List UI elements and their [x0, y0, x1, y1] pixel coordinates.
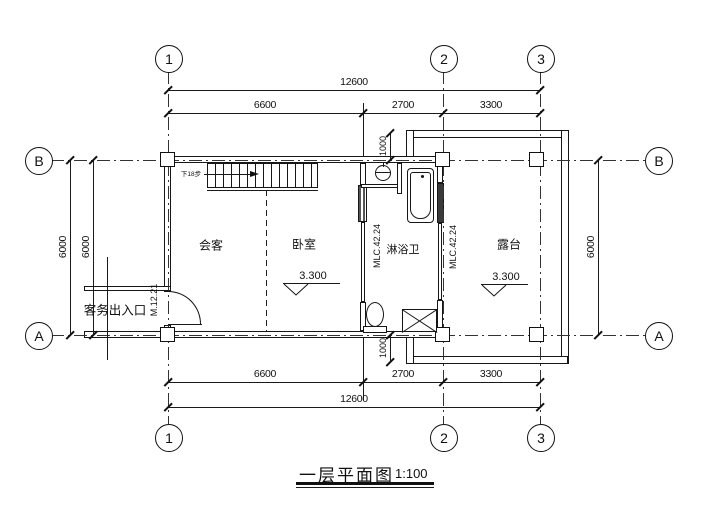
dim-line-right: [598, 160, 599, 335]
stair-direction-line: [204, 174, 250, 175]
dim-line-offset-bottom: [390, 335, 391, 362]
title-underline-thick: [296, 482, 434, 485]
column-3a: [529, 327, 544, 342]
ext-line-bottom: [363, 338, 364, 400]
terrace-slab-bottom: [406, 356, 568, 364]
room-label-bathroom: 淋浴卫: [387, 241, 420, 257]
dim-line-top-segments: [168, 113, 540, 114]
dim-top-s2: 2700: [392, 99, 414, 111]
axis-bubble-1-top: 1: [155, 45, 183, 73]
axis-bubble-b-right: B: [645, 147, 673, 175]
entrance-door-label: M.12.21: [149, 284, 159, 317]
dim-line-top-overall: [168, 90, 540, 91]
axis-bubble-a-right: A: [645, 322, 673, 350]
dim-bottom-s3: 3300: [480, 368, 502, 380]
entrance-door-swing-arc: [168, 291, 201, 324]
dim-line-offset-top: [390, 133, 391, 160]
mlc-label-right: MLC.42.24: [448, 225, 458, 269]
axis-bubble-2-bottom: 2: [430, 424, 458, 452]
washbasin-icon: [375, 165, 391, 181]
bath-left-window: [358, 185, 367, 222]
level-value-bedroom: 3.300: [299, 270, 327, 282]
column-1a: [160, 327, 175, 342]
bathtub-inner: [410, 172, 431, 219]
column-2b: [435, 152, 450, 167]
room-label-terrace: 露台: [497, 236, 521, 253]
drawing-scale: 1:100: [395, 466, 428, 481]
dim-bottom-s2: 2700: [392, 368, 414, 380]
dim-line-left-outer: [70, 160, 71, 335]
grid-line-3: [540, 71, 541, 424]
room-divider-dashed: [266, 190, 267, 331]
dim-bottom-s1: 6600: [254, 368, 276, 380]
mlc-label-left: MLC.42.24: [372, 224, 382, 268]
entrance-label: 客务出入口: [84, 300, 147, 319]
axis-bubble-3-top: 3: [527, 45, 555, 73]
grid-line-b: [51, 160, 645, 161]
dim-top-s3: 3300: [480, 99, 502, 111]
stair-run-edge: [207, 190, 318, 191]
level-triangle-icon: [283, 284, 309, 297]
washbasin-cross: [375, 172, 391, 173]
axis-bubble-1-bottom: 1: [155, 424, 183, 452]
terrace-slab-top: [406, 130, 568, 138]
washbasin-tap: [383, 162, 384, 167]
dim-left-inner: 6000: [80, 236, 92, 258]
stair-run: [207, 163, 318, 188]
room-label-reception: 会客: [199, 237, 223, 254]
level-triangle-icon: [481, 285, 507, 298]
room-label-bedroom: 卧室: [292, 236, 316, 253]
grid-line-2: [443, 71, 444, 424]
wall-bath-left-top: [360, 163, 366, 185]
toilet-tank: [363, 326, 387, 333]
toilet-bowl-icon: [366, 302, 384, 327]
dim-top-overall: 12600: [340, 76, 368, 88]
entrance-door-panel: [168, 324, 202, 325]
stair-label: 下18步: [181, 168, 201, 178]
dim-left-outer: 6000: [57, 236, 69, 258]
dim-top-s1: 6600: [254, 99, 276, 111]
axis-bubble-a-left: A: [25, 322, 53, 350]
bathtub-drain-dot: [421, 175, 424, 178]
title-underline-thin: [296, 487, 434, 488]
wall-bath-right-mid: [438, 223, 442, 300]
level-value-terrace: 3.300: [492, 271, 520, 283]
dim-bottom-overall: 12600: [340, 393, 368, 405]
column-3b: [529, 152, 544, 167]
dim-offset-top: 1000: [378, 136, 388, 156]
dim-line-bottom-segments: [168, 382, 540, 383]
stair-direction-arrow-icon: [250, 171, 259, 177]
dim-line-bottom-overall: [168, 407, 540, 408]
basin-niche-partition: [397, 163, 402, 194]
terrace-slab-right: [561, 130, 569, 364]
dim-right-depth: 6000: [585, 236, 597, 258]
axis-bubble-b-left: B: [25, 147, 53, 175]
dim-offset-bottom: 1000: [378, 338, 388, 358]
basin-niche-shelf: [361, 184, 402, 188]
grid-line-1: [168, 71, 169, 424]
axis-bubble-2-top: 2: [430, 45, 458, 73]
column-2a: [435, 327, 450, 342]
grid-line-a: [51, 335, 645, 336]
axis-bubble-3-bottom: 3: [527, 424, 555, 452]
floor-plan-drawing: 下18步 12600 6600 2700 3300 6600 2700 3300…: [0, 0, 720, 514]
wall-bath-left-mid: [361, 222, 365, 302]
column-1b: [160, 152, 175, 167]
